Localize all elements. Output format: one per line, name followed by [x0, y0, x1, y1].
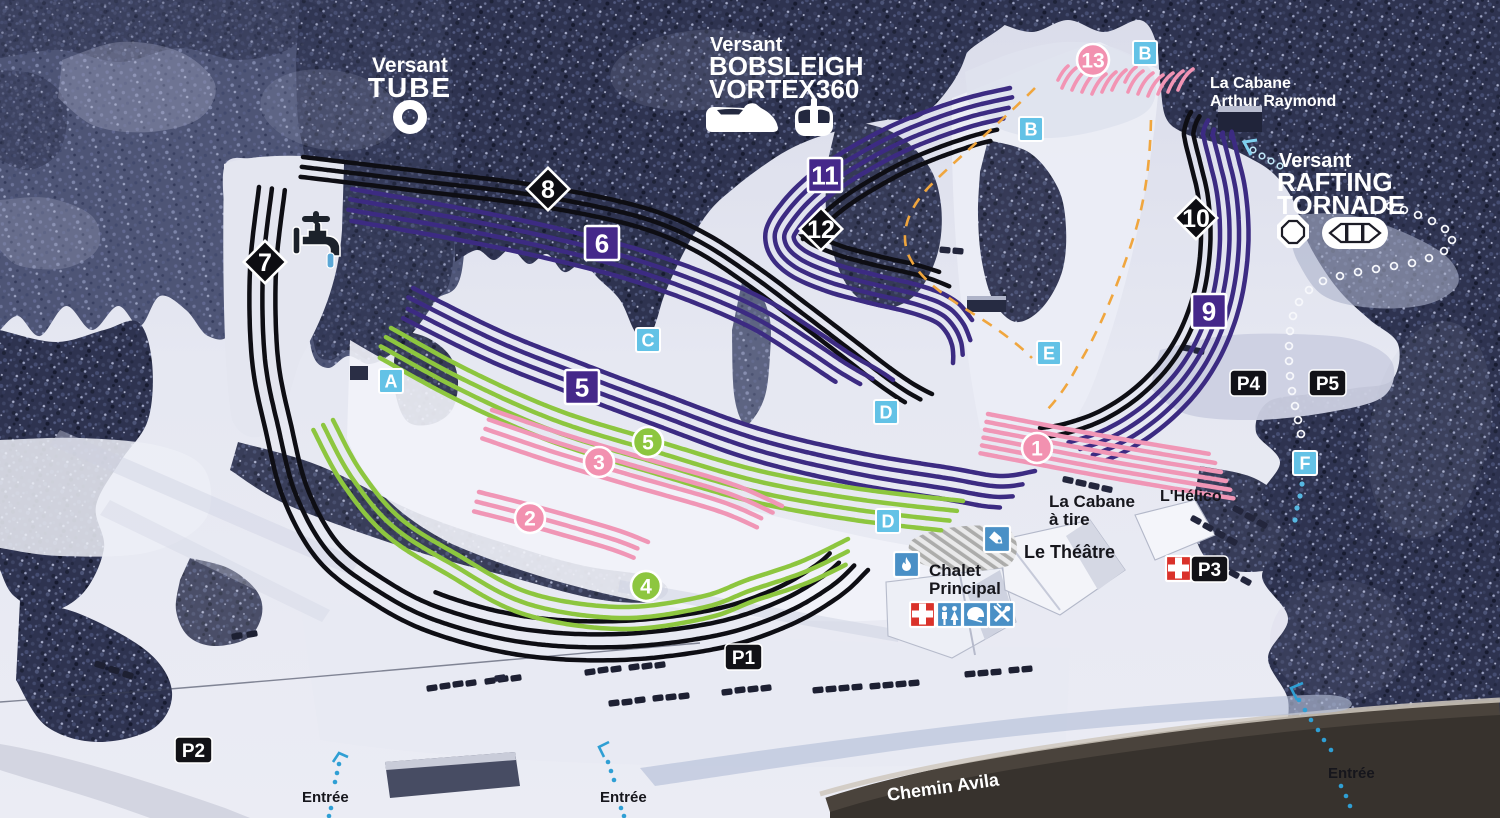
svg-text:E: E — [1043, 344, 1055, 364]
svg-text:9: 9 — [1202, 297, 1216, 327]
svg-text:C: C — [642, 331, 655, 351]
svg-text:TORNADE: TORNADE — [1277, 190, 1405, 220]
svg-text:Le Théâtre: Le Théâtre — [1024, 542, 1115, 562]
svg-text:Chalet: Chalet — [929, 561, 981, 580]
svg-text:2: 2 — [524, 508, 536, 531]
svg-text:A: A — [385, 372, 398, 392]
svg-text:B: B — [1139, 44, 1152, 64]
svg-text:13: 13 — [1081, 50, 1104, 73]
svg-text:1: 1 — [1031, 438, 1043, 461]
svg-text:P1: P1 — [732, 648, 756, 669]
svg-text:L'Hélico: L'Hélico — [1160, 488, 1222, 505]
svg-text:12: 12 — [807, 216, 835, 244]
svg-text:7: 7 — [258, 249, 272, 277]
svg-text:P5: P5 — [1316, 374, 1340, 395]
svg-text:La Cabane: La Cabane — [1049, 492, 1135, 511]
svg-text:La Cabane: La Cabane — [1210, 75, 1291, 92]
svg-text:Entrée: Entrée — [302, 789, 349, 806]
svg-text:D: D — [880, 403, 893, 423]
svg-text:VORTEX360: VORTEX360 — [709, 74, 859, 104]
svg-text:Entrée: Entrée — [600, 789, 647, 806]
svg-text:8: 8 — [541, 176, 555, 204]
svg-text:4: 4 — [640, 576, 652, 599]
svg-text:P4: P4 — [1237, 374, 1261, 395]
svg-text:5: 5 — [642, 432, 654, 455]
svg-text:5: 5 — [575, 373, 589, 403]
svg-text:6: 6 — [595, 229, 609, 259]
svg-text:Entrée: Entrée — [1328, 765, 1375, 782]
svg-text:B: B — [1025, 120, 1038, 140]
svg-text:3: 3 — [593, 452, 605, 475]
svg-text:TUBE: TUBE — [368, 72, 452, 103]
svg-text:11: 11 — [811, 161, 839, 191]
svg-text:D: D — [882, 512, 895, 532]
svg-text:Arthur Raymond: Arthur Raymond — [1210, 93, 1336, 110]
svg-text:à tire: à tire — [1049, 510, 1090, 529]
svg-text:Principal: Principal — [929, 579, 1001, 598]
svg-text:F: F — [1300, 454, 1311, 474]
svg-text:P2: P2 — [182, 741, 205, 762]
svg-text:P3: P3 — [1198, 560, 1221, 581]
svg-text:10: 10 — [1182, 205, 1210, 233]
